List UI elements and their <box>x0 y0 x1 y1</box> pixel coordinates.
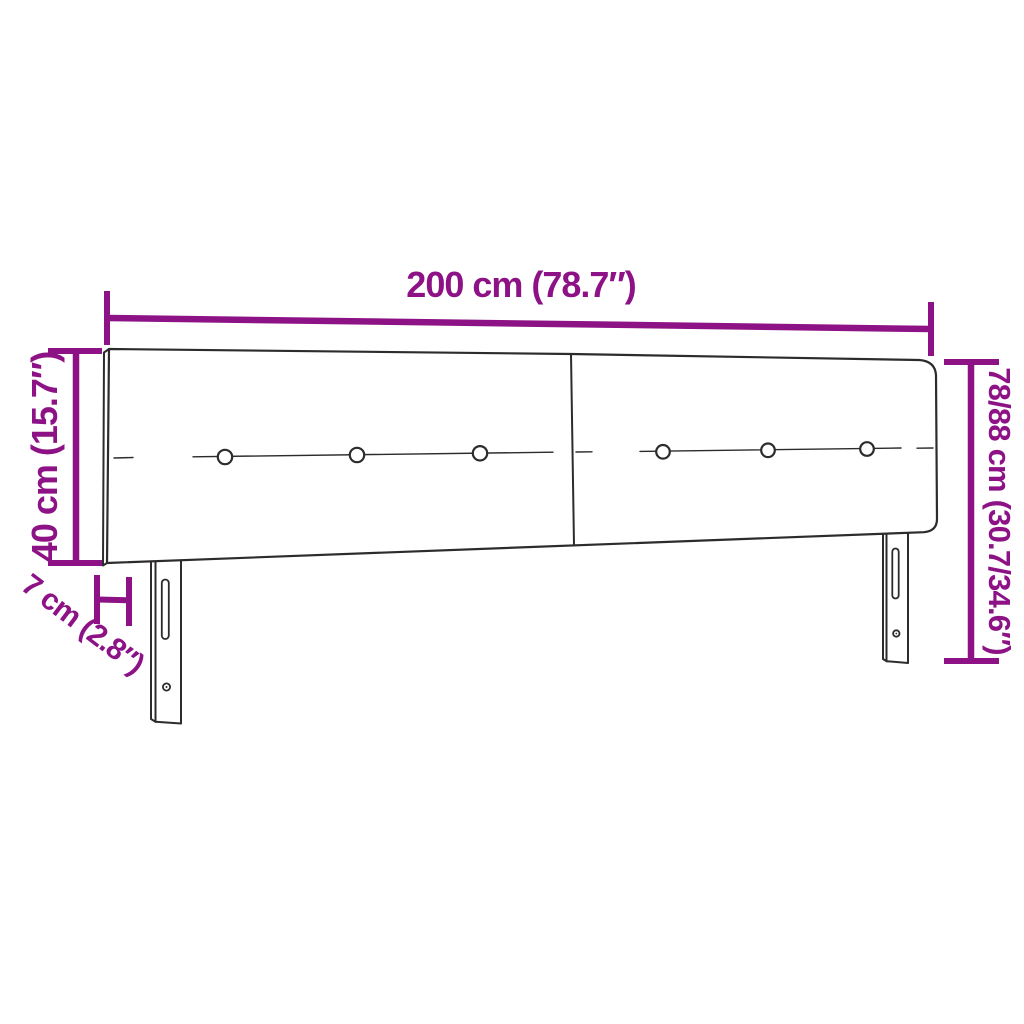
left-leg <box>151 560 181 723</box>
right-leg-hole-center <box>895 633 897 635</box>
dimension-line <box>107 318 931 329</box>
tufting-button <box>473 446 487 460</box>
tufting-button <box>761 444 775 458</box>
total-height-dimension-label: 78/88 cm (30.7/34.6″) <box>982 367 1017 655</box>
product-dimension-diagram: 200 cm (78.7″) 40 cm (15.7″) 78/88 cm (3… <box>0 0 1024 1024</box>
tufting-button <box>656 445 670 459</box>
left-leg-hole-center <box>166 686 168 688</box>
headboard-drawing <box>103 349 937 724</box>
tufting-button <box>860 442 874 456</box>
width-dimension-label: 200 cm (78.7″) <box>406 264 635 305</box>
dimension-diagram-canvas: 200 cm (78.7″) 40 cm (15.7″) 78/88 cm (3… <box>0 0 1024 1024</box>
tufting-button <box>350 448 364 462</box>
panel-height-dimension-label: 40 cm (15.7″) <box>24 352 65 562</box>
dimension-line <box>98 600 129 601</box>
crease-segment <box>114 458 133 459</box>
tufting-button <box>218 450 232 464</box>
right-leg <box>883 533 908 663</box>
